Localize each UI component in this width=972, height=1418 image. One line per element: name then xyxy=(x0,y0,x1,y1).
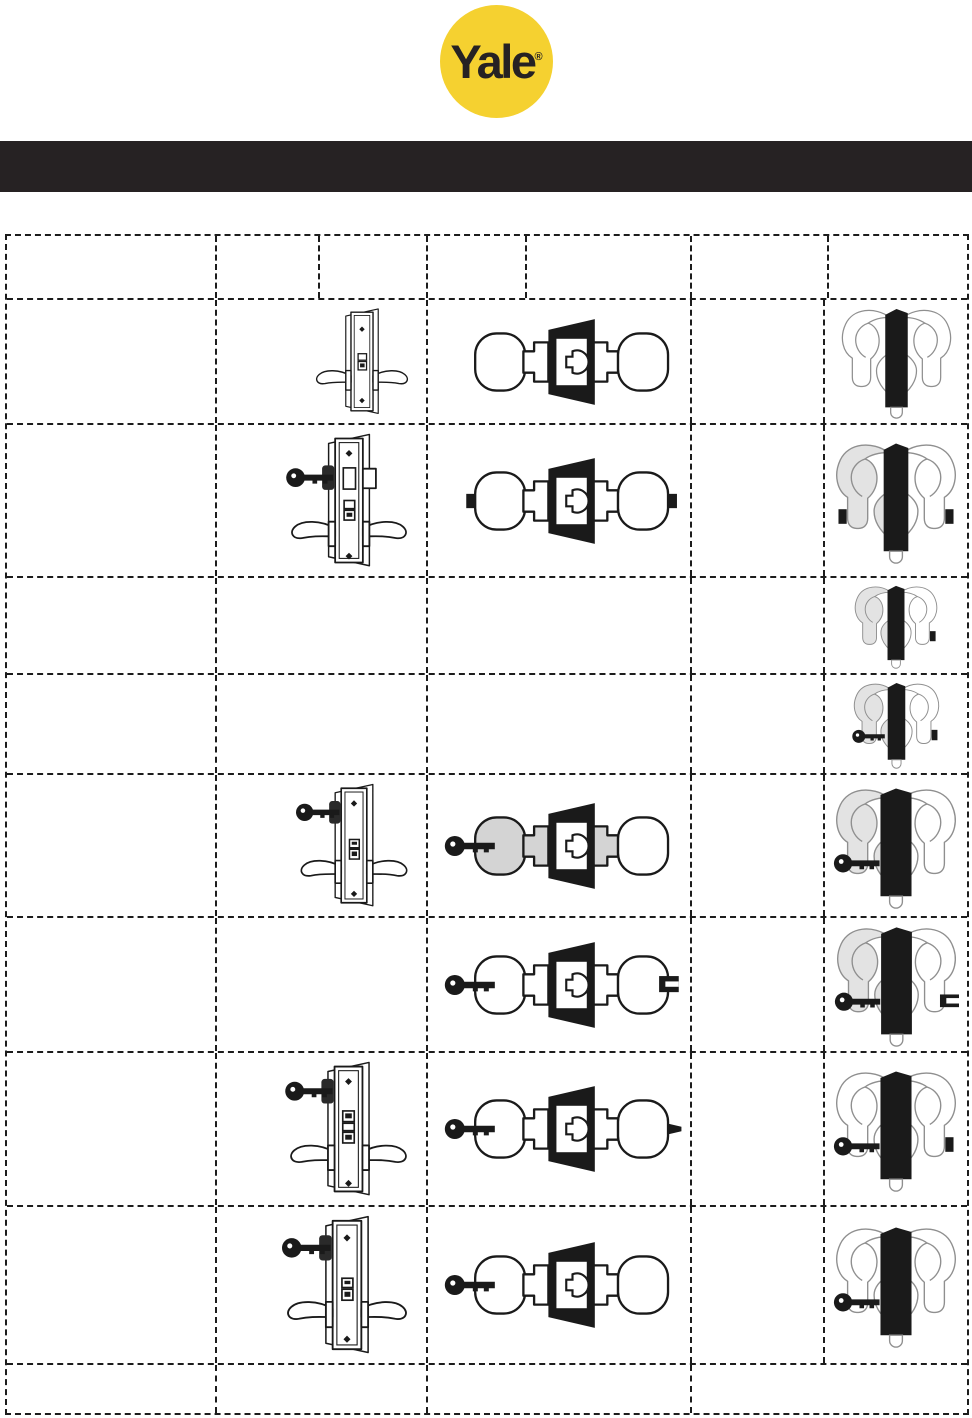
right-lever xyxy=(902,445,955,538)
footer-row-cell xyxy=(428,1365,692,1413)
right-lever xyxy=(363,522,406,546)
lockbody-cell xyxy=(217,918,428,1051)
left-stem xyxy=(523,1265,548,1304)
knob-cell xyxy=(428,300,692,423)
latch-bolt xyxy=(343,1123,355,1130)
header-row-cell xyxy=(527,236,692,298)
knob-cell xyxy=(428,675,692,773)
knob-diagram xyxy=(434,312,686,412)
function-row xyxy=(7,775,967,918)
lever-cell xyxy=(825,775,967,916)
latch-tip xyxy=(892,660,901,668)
latch-tip xyxy=(891,760,900,768)
function-row xyxy=(7,578,967,675)
knob-cell xyxy=(428,918,692,1051)
pin-icon xyxy=(668,1124,681,1135)
left-knob xyxy=(475,472,525,529)
push-button-left-icon xyxy=(838,509,846,524)
door-edge xyxy=(885,309,908,407)
lever-cell xyxy=(825,578,967,673)
push-button-right-icon xyxy=(930,631,936,641)
right-knob xyxy=(618,817,668,874)
lever-diagram xyxy=(852,582,940,669)
latch-tip xyxy=(890,551,903,563)
right-knob xyxy=(618,1100,668,1157)
right-lever xyxy=(902,310,950,395)
function-cell xyxy=(7,675,217,773)
left-lever xyxy=(291,1145,334,1170)
function-cell xyxy=(7,1207,217,1363)
latch-tip xyxy=(890,1335,903,1347)
registered-mark: ® xyxy=(534,51,542,63)
lever-diagram xyxy=(832,438,960,564)
lockbody-diagram xyxy=(312,307,412,416)
right-lever xyxy=(362,1145,405,1170)
function-cell xyxy=(7,1053,217,1205)
latch-tip xyxy=(890,896,903,908)
left-stem xyxy=(523,965,548,1004)
function-cell xyxy=(7,300,217,423)
latch-bolt xyxy=(343,468,355,489)
right-stem xyxy=(593,1109,618,1148)
knob-cell xyxy=(428,425,692,576)
left-stem xyxy=(523,481,548,520)
right-lever xyxy=(373,371,407,390)
function-row xyxy=(7,918,967,1053)
latch-tip xyxy=(890,407,902,418)
yale-logo: Yale® xyxy=(440,5,553,118)
latch-tip xyxy=(890,1179,903,1191)
door-edge xyxy=(888,586,905,660)
left-lever xyxy=(288,1302,333,1327)
left-lever xyxy=(317,371,351,390)
knob-diagram xyxy=(434,796,686,896)
door-edge xyxy=(887,683,905,760)
knob-cell xyxy=(428,1207,692,1363)
function-row xyxy=(7,1053,967,1207)
lockbody-cell xyxy=(217,675,428,773)
lever-cell xyxy=(825,675,967,773)
right-stem xyxy=(593,481,618,520)
lever-cell xyxy=(825,1207,967,1363)
push-button-right-icon xyxy=(945,1137,953,1152)
lever-diagram xyxy=(832,783,960,909)
spacer-cell xyxy=(692,1207,825,1363)
left-lever xyxy=(855,587,891,651)
lever-diagram xyxy=(838,304,955,419)
lockbody-cell xyxy=(217,775,428,916)
yale-logo-text: Yale® xyxy=(450,38,542,85)
footer-row-cell xyxy=(692,1365,967,1413)
push-button-right-icon xyxy=(668,493,677,507)
lever-cell xyxy=(825,918,967,1051)
knob-diagram xyxy=(434,451,686,551)
lever-diagram xyxy=(851,679,942,769)
function-cell xyxy=(7,578,217,673)
push-button-right-icon xyxy=(931,730,937,740)
door-edge xyxy=(880,1227,911,1335)
title-banner xyxy=(0,141,972,192)
spacer-cell xyxy=(692,775,825,916)
header-row-cell xyxy=(692,236,829,298)
header-row-cell xyxy=(217,236,320,298)
left-lever xyxy=(837,445,890,538)
spacer-cell xyxy=(692,425,825,576)
header-row-cell xyxy=(7,236,217,298)
header-row-cell xyxy=(829,236,967,298)
lever-diagram xyxy=(832,1066,960,1192)
knob-diagram xyxy=(434,935,686,1035)
left-lever xyxy=(842,310,890,395)
push-button-right-icon xyxy=(945,509,953,524)
latch-bolt xyxy=(358,354,366,360)
function-row xyxy=(7,425,967,578)
function-row xyxy=(7,300,967,425)
lockbody-diagram xyxy=(282,1214,412,1356)
function-row xyxy=(7,1207,967,1365)
right-lever xyxy=(901,684,939,750)
right-stem xyxy=(593,826,618,865)
right-stem xyxy=(593,342,618,381)
knob-cell xyxy=(428,578,692,673)
spacer-cell xyxy=(692,1053,825,1205)
catalog-page: Yale® xyxy=(0,0,972,1418)
lockbody-cell xyxy=(217,578,428,673)
right-lever xyxy=(900,587,936,651)
function-row xyxy=(7,675,967,775)
function-cell xyxy=(7,775,217,916)
footer-row xyxy=(7,1365,967,1413)
header-row-cell xyxy=(428,236,527,298)
left-stem xyxy=(523,342,548,381)
lockbody-cell xyxy=(217,1207,428,1363)
right-lever xyxy=(361,1302,406,1327)
door-edge xyxy=(884,443,909,551)
knob-cell xyxy=(428,775,692,916)
latch-bolt xyxy=(344,501,355,509)
lockbody-cell xyxy=(217,1053,428,1205)
latch-tip xyxy=(890,1034,903,1046)
turn-slot-icon xyxy=(939,994,958,1007)
push-button-left-icon xyxy=(466,493,475,507)
knob-cell xyxy=(428,1053,692,1205)
function-cell xyxy=(7,918,217,1051)
right-knob xyxy=(618,333,668,390)
lever-cell xyxy=(825,300,967,423)
door-edge xyxy=(881,927,912,1034)
lever-cell xyxy=(825,425,967,576)
lever-diagram xyxy=(832,1222,960,1348)
lock-functions-table xyxy=(5,234,969,1415)
knob-diagram xyxy=(434,1079,686,1179)
lockbody-diagram xyxy=(286,432,412,569)
left-lever xyxy=(301,861,341,884)
header-row-cell xyxy=(320,236,428,298)
left-knob xyxy=(475,333,525,390)
spacer-cell xyxy=(692,578,825,673)
right-knob xyxy=(618,1256,668,1313)
right-lever xyxy=(367,861,407,884)
door-edge xyxy=(880,1071,911,1179)
right-stem xyxy=(593,1265,618,1304)
footer-row-cell xyxy=(217,1365,428,1413)
lockbody-cell xyxy=(217,425,428,576)
lockbody-diagram xyxy=(296,782,412,909)
lever-diagram xyxy=(833,922,960,1047)
lockbody-diagram xyxy=(285,1060,412,1198)
left-lever xyxy=(292,522,335,546)
knob-diagram xyxy=(434,1235,686,1335)
thumbturn-hub xyxy=(363,469,376,489)
lever-cell xyxy=(825,1053,967,1205)
lockbody-cell xyxy=(217,300,428,423)
right-knob xyxy=(618,472,668,529)
spacer-cell xyxy=(692,918,825,1051)
header-row xyxy=(7,236,967,300)
spacer-cell xyxy=(692,675,825,773)
spacer-cell xyxy=(692,300,825,423)
left-stem xyxy=(523,1109,548,1148)
left-stem xyxy=(523,826,548,865)
door-edge xyxy=(880,788,911,896)
footer-row-cell xyxy=(7,1365,217,1413)
right-stem xyxy=(593,965,618,1004)
function-cell xyxy=(7,425,217,576)
turn-slot-icon xyxy=(659,976,679,992)
